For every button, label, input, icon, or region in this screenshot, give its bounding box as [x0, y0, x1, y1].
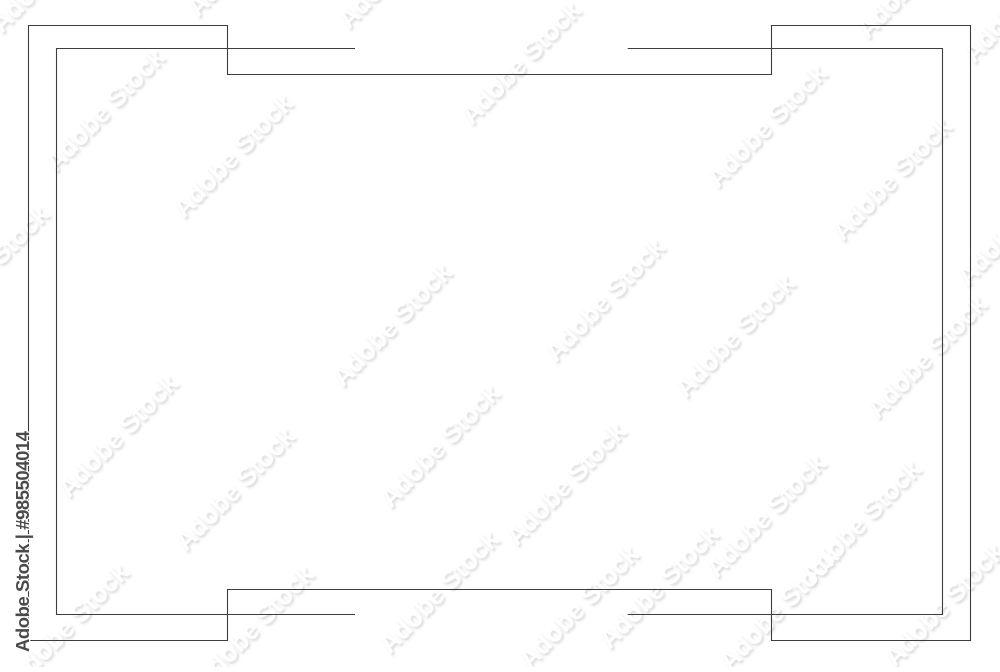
- svg-text:Adobe Stock: Adobe Stock: [851, 0, 983, 44]
- svg-text:Adobe Stock | #985504014: Adobe Stock | #985504014: [12, 430, 33, 652]
- svg-text:Adobe Stock: Adobe Stock: [0, 0, 117, 38]
- svg-text:Adobe Stock: Adobe Stock: [374, 378, 506, 514]
- svg-text:Adobe Stock: Adobe Stock: [701, 58, 833, 194]
- svg-text:Adobe Stock: Adobe Stock: [878, 537, 1000, 667]
- svg-text:Adobe Stock: Adobe Stock: [167, 88, 299, 224]
- svg-text:Adobe Stock: Adobe Stock: [539, 232, 671, 368]
- svg-text:Adobe Stock: Adobe Stock: [373, 524, 505, 660]
- svg-text:Adobe Stock: Adobe Stock: [181, 0, 313, 22]
- svg-text:Adobe Stock: Adobe Stock: [951, 156, 1000, 292]
- svg-text:Adobe Stock: Adobe Stock: [169, 421, 301, 557]
- svg-text:Adobe Stock: Adobe Stock: [0, 199, 55, 335]
- svg-text:Adobe Stock: Adobe Stock: [52, 368, 184, 504]
- svg-text:Adobe Stock: Adobe Stock: [39, 42, 171, 178]
- svg-text:Adobe Stock: Adobe Stock: [957, 0, 1000, 68]
- svg-text:Adobe Stock: Adobe Stock: [188, 559, 320, 667]
- svg-text:Adobe Stock: Adobe Stock: [861, 289, 993, 425]
- svg-text:Adobe Stock: Adobe Stock: [332, 0, 464, 34]
- svg-text:Adobe Stock: Adobe Stock: [326, 257, 458, 393]
- svg-text:Adobe Stock: Adobe Stock: [669, 268, 801, 404]
- svg-text:Adobe Stock: Adobe Stock: [826, 111, 958, 247]
- svg-text:Adobe Stock: Adobe Stock: [455, 0, 587, 130]
- svg-text:Adobe Stock: Adobe Stock: [500, 416, 632, 552]
